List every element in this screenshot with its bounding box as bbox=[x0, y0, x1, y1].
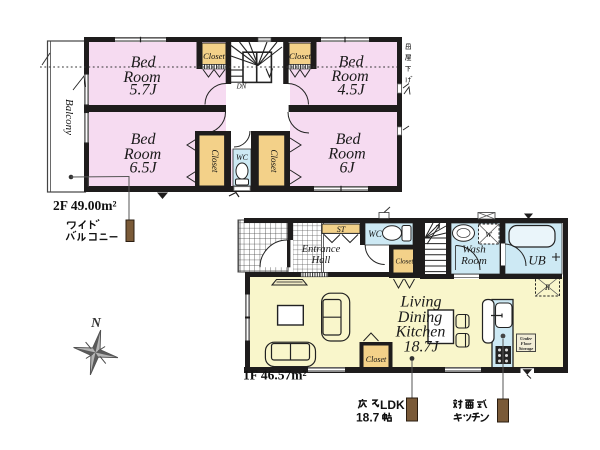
svg-text:Closet: Closet bbox=[289, 51, 311, 61]
svg-text:Closet: Closet bbox=[366, 355, 387, 364]
svg-text:4.5J: 4.5J bbox=[337, 82, 365, 99]
svg-text:Balcony: Balcony bbox=[63, 99, 75, 135]
svg-text:W: W bbox=[485, 230, 492, 239]
svg-text:WC: WC bbox=[236, 153, 249, 162]
svg-text:6.5J: 6.5J bbox=[129, 160, 157, 177]
svg-text:Closet: Closet bbox=[396, 258, 415, 266]
svg-text:1F 46.57m²: 1F 46.57m² bbox=[243, 368, 307, 383]
svg-text:Closet: Closet bbox=[210, 149, 220, 173]
svg-text:DN: DN bbox=[236, 83, 247, 91]
svg-text:Room: Room bbox=[460, 255, 487, 267]
svg-text:ST: ST bbox=[337, 225, 346, 234]
svg-text:LDK: LDK bbox=[380, 398, 405, 412]
svg-text:5.7J: 5.7J bbox=[129, 82, 157, 99]
svg-text:Entrance: Entrance bbox=[301, 244, 341, 255]
svg-text:UB: UB bbox=[528, 253, 545, 268]
svg-text:2F 49.00m²: 2F 49.00m² bbox=[53, 198, 117, 213]
svg-text:WC: WC bbox=[368, 229, 382, 239]
svg-text:18.7: 18.7 bbox=[356, 411, 380, 425]
svg-text:Wash: Wash bbox=[462, 244, 486, 256]
svg-text:6J: 6J bbox=[339, 160, 355, 177]
svg-text:Living: Living bbox=[400, 294, 442, 311]
svg-text:R: R bbox=[544, 283, 550, 292]
svg-text:18.7J: 18.7J bbox=[403, 339, 439, 356]
svg-text:Hall: Hall bbox=[311, 255, 331, 266]
svg-text:Closet: Closet bbox=[203, 51, 225, 61]
svg-text:Closet: Closet bbox=[269, 149, 279, 173]
svg-text:N: N bbox=[90, 315, 102, 330]
svg-text:Storage: Storage bbox=[519, 346, 534, 351]
